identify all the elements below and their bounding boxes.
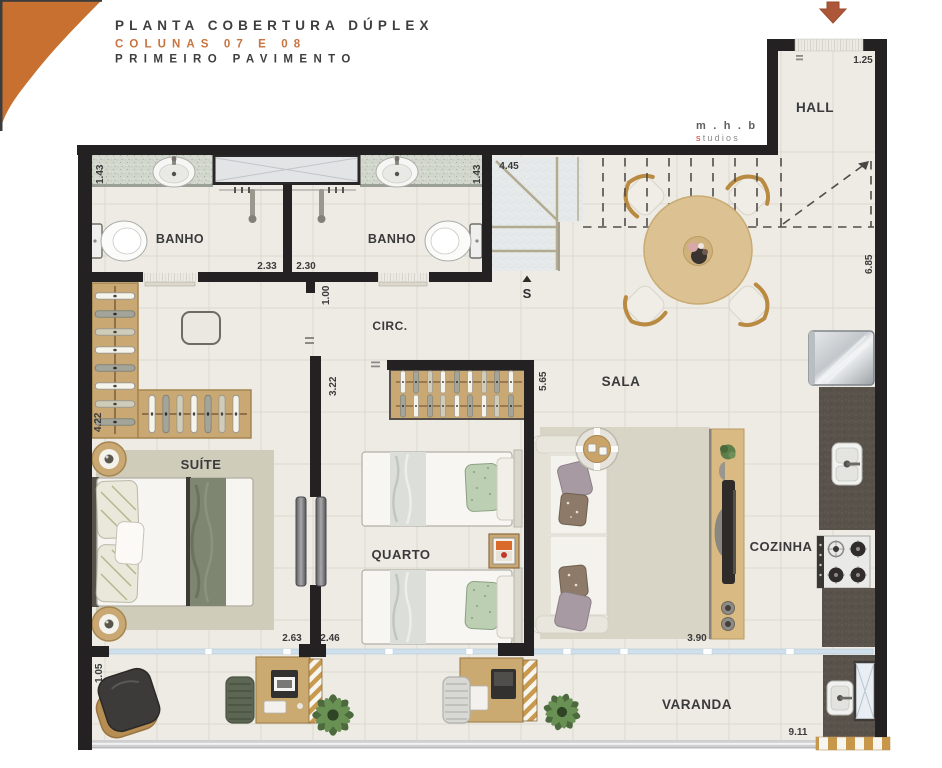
svg-text:QUARTO: QUARTO <box>371 547 430 562</box>
svg-text:1.25: 1.25 <box>853 55 873 66</box>
svg-text:4.45: 4.45 <box>499 161 519 172</box>
svg-text:HALL: HALL <box>796 100 834 115</box>
svg-text:9.11: 9.11 <box>789 727 808 738</box>
svg-text:6.85: 6.85 <box>864 254 875 274</box>
svg-text:SALA: SALA <box>602 374 641 389</box>
svg-text:2.30: 2.30 <box>296 261 316 272</box>
svg-text:BANHO: BANHO <box>368 232 416 246</box>
svg-text:2.33: 2.33 <box>257 261 277 272</box>
svg-text:5.65: 5.65 <box>538 371 549 391</box>
svg-text:PLANTA COBERTURA DÚPLEX: PLANTA COBERTURA DÚPLEX <box>115 18 434 33</box>
svg-text:COLUNAS 07 E 08: COLUNAS 07 E 08 <box>115 39 306 51</box>
svg-text:3.22: 3.22 <box>328 376 339 396</box>
svg-text:VARANDA: VARANDA <box>662 697 732 712</box>
svg-text:4.22: 4.22 <box>93 412 104 432</box>
svg-text:studios: studios <box>696 133 740 143</box>
svg-text:1.00: 1.00 <box>321 285 332 305</box>
svg-text:PRIMEIRO PAVIMENTO: PRIMEIRO PAVIMENTO <box>115 54 357 66</box>
svg-text:COZINHA: COZINHA <box>750 539 813 554</box>
svg-text:1.05: 1.05 <box>94 663 105 683</box>
svg-text:CIRC.: CIRC. <box>372 319 407 333</box>
svg-text:1.43: 1.43 <box>472 164 483 184</box>
svg-text:2.46: 2.46 <box>320 633 340 644</box>
svg-text:S: S <box>523 286 532 301</box>
svg-text:BANHO: BANHO <box>156 232 204 246</box>
svg-text:SUÍTE: SUÍTE <box>181 457 222 472</box>
svg-text:1.43: 1.43 <box>95 164 106 184</box>
svg-text:m . h . b: m . h . b <box>696 120 757 132</box>
svg-text:2.63: 2.63 <box>282 633 302 644</box>
svg-text:3.90: 3.90 <box>687 633 707 644</box>
